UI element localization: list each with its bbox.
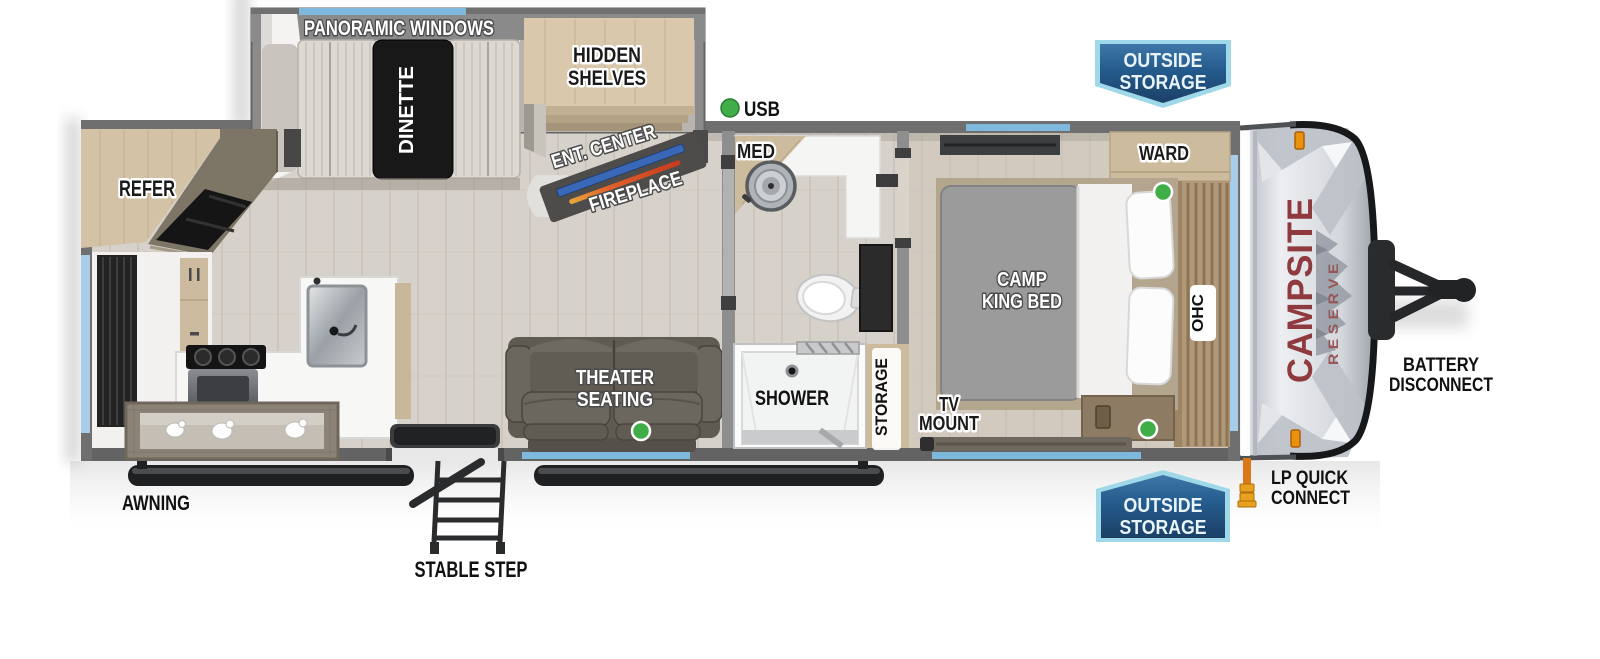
svg-text:SHELVES: SHELVES <box>568 67 646 90</box>
svg-text:DISCONNECT: DISCONNECT <box>1389 375 1493 396</box>
svg-text:DINETTE: DINETTE <box>396 66 418 154</box>
svg-text:RESERVE: RESERVE <box>1325 259 1341 365</box>
svg-text:KING BED: KING BED <box>982 291 1062 313</box>
svg-text:MED: MED <box>737 141 775 163</box>
svg-text:AWNING: AWNING <box>122 492 190 515</box>
svg-text:SHOWER: SHOWER <box>755 387 829 410</box>
svg-text:OUTSIDE: OUTSIDE <box>1124 495 1203 517</box>
svg-text:USB: USB <box>744 98 780 121</box>
svg-text:REFER: REFER <box>119 176 175 201</box>
svg-text:THEATER: THEATER <box>576 367 654 389</box>
svg-text:STABLE STEP: STABLE STEP <box>415 557 528 582</box>
svg-text:OHC: OHC <box>1190 294 1207 332</box>
svg-text:CAMPSITE: CAMPSITE <box>1281 197 1320 383</box>
svg-text:STORAGE: STORAGE <box>1120 517 1207 539</box>
svg-text:MOUNT: MOUNT <box>919 413 979 435</box>
svg-text:PANORAMIC WINDOWS: PANORAMIC WINDOWS <box>304 17 494 40</box>
svg-text:STORAGE: STORAGE <box>872 358 891 436</box>
svg-text:STORAGE: STORAGE <box>1120 72 1207 94</box>
svg-text:LP QUICK: LP QUICK <box>1271 468 1348 489</box>
svg-text:SEATING: SEATING <box>577 389 653 411</box>
svg-text:WARD: WARD <box>1139 143 1189 165</box>
svg-text:CAMP: CAMP <box>997 269 1047 291</box>
svg-text:CONNECT: CONNECT <box>1271 488 1350 509</box>
svg-text:BATTERY: BATTERY <box>1403 355 1479 376</box>
svg-text:OUTSIDE: OUTSIDE <box>1124 50 1203 72</box>
svg-text:HIDDEN: HIDDEN <box>573 44 641 67</box>
